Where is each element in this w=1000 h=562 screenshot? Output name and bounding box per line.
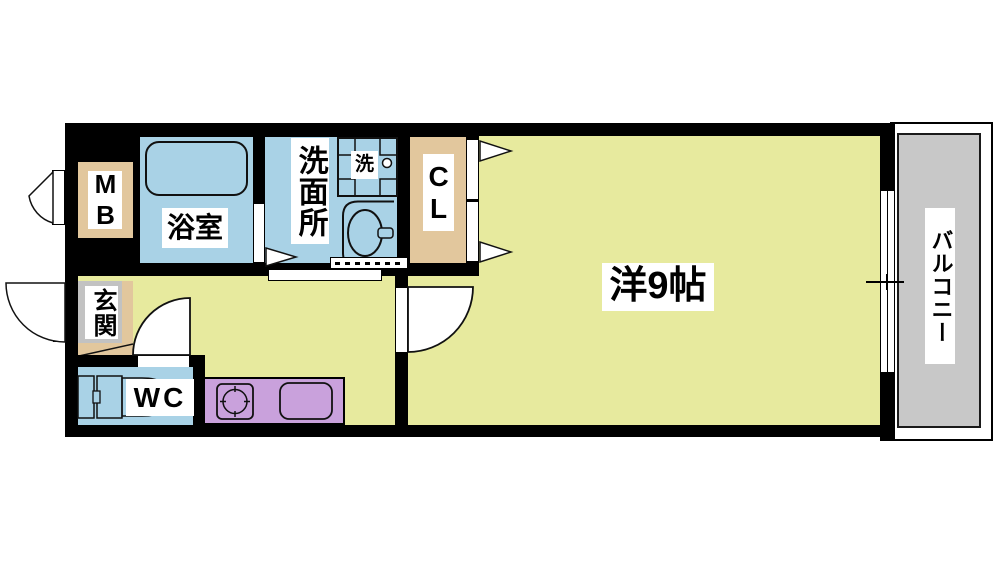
bath-door-triangle — [265, 247, 298, 268]
wc-door-opening — [137, 356, 190, 367]
wc-label: WC — [126, 379, 194, 416]
entrance-label: 玄関 — [85, 286, 118, 339]
meter-box-door-arc — [26, 168, 54, 226]
washroom-sliding-door-panel-rear — [330, 257, 408, 269]
bath-door — [253, 203, 265, 263]
window-center-mark-v — [886, 274, 888, 290]
closet-door-triangle-top — [479, 140, 513, 162]
window-center-mark-h — [866, 281, 904, 283]
closet-label: CL — [423, 154, 454, 231]
sliding-door-dash-line — [335, 262, 403, 265]
meter-box-label: MB — [88, 171, 122, 229]
floorplan: MB 浴室 洗面所 洗 CL 洋9帖 玄関 WC バルコニー — [0, 0, 1000, 562]
washroom-sliding-door-panel-front — [268, 269, 382, 281]
entrance-door-arc — [5, 282, 66, 343]
bathtub-icon — [145, 141, 248, 196]
wall-pillar-bottom-right — [880, 370, 895, 441]
main-room-door-arc — [407, 286, 475, 354]
balcony-label: バルコニー — [925, 208, 955, 364]
main-room-label: 洋9帖 — [602, 263, 714, 311]
bathroom-label: 浴室 — [162, 208, 228, 248]
wc-door-arc — [132, 297, 192, 357]
laundry-pan-label: 洗 — [351, 151, 378, 179]
kitchen-counter — [203, 377, 345, 425]
closet-door-triangle-bottom — [479, 241, 513, 263]
washroom-label: 洗面所 — [291, 138, 329, 244]
closet-door-panel-bottom — [466, 201, 479, 262]
closet-door-panel-top — [466, 139, 479, 200]
